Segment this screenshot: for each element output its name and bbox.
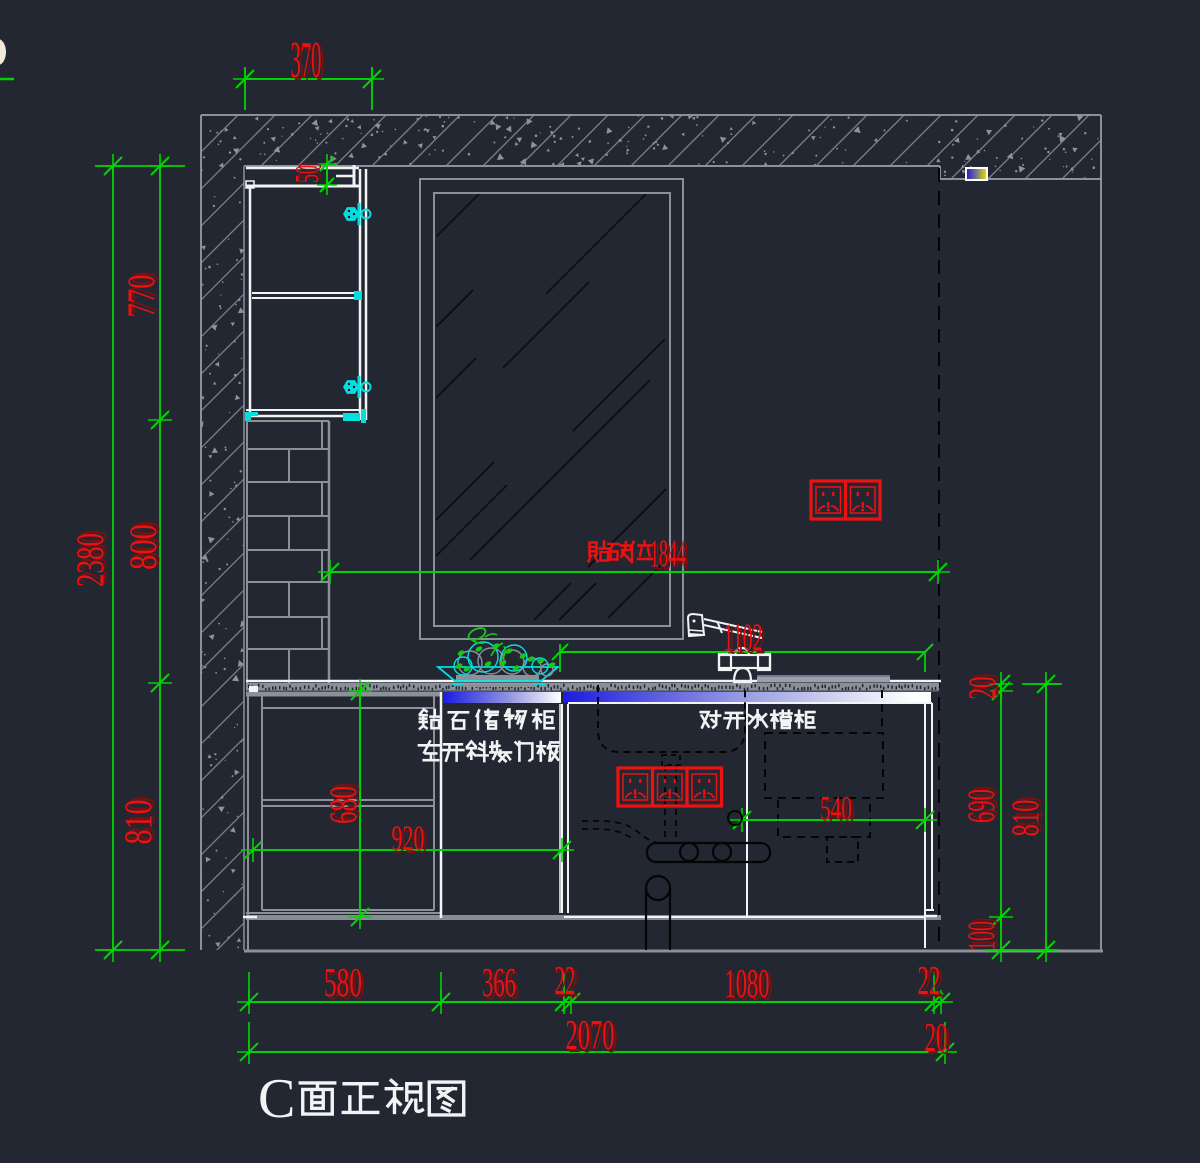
svg-text:370: 370 [291,32,322,88]
svg-text:1844: 1844 [650,531,686,575]
svg-text:20: 20 [925,1015,948,1061]
svg-text:690: 690 [958,789,1002,823]
svg-text:1080: 1080 [725,962,770,1007]
svg-text:540: 540 [820,790,852,829]
svg-text:100: 100 [959,921,1003,951]
svg-text:2070: 2070 [566,1012,615,1059]
svg-text:920: 920 [391,817,424,858]
svg-text:810: 810 [1004,800,1047,837]
svg-text:2380: 2380 [69,533,112,587]
svg-text:680: 680 [322,786,366,824]
svg-text:20: 20 [960,676,1004,699]
svg-text:366: 366 [482,961,516,1006]
svg-text:C: C [258,1068,295,1130]
svg-text:1102: 1102 [723,615,762,659]
svg-text:22: 22 [555,959,576,1004]
svg-text:810: 810 [116,799,160,844]
svg-text:22: 22 [918,958,941,1004]
svg-text:770: 770 [120,274,163,317]
svg-text:580: 580 [324,961,362,1005]
svg-text:800: 800 [121,524,165,570]
svg-text:50: 50 [288,165,325,183]
